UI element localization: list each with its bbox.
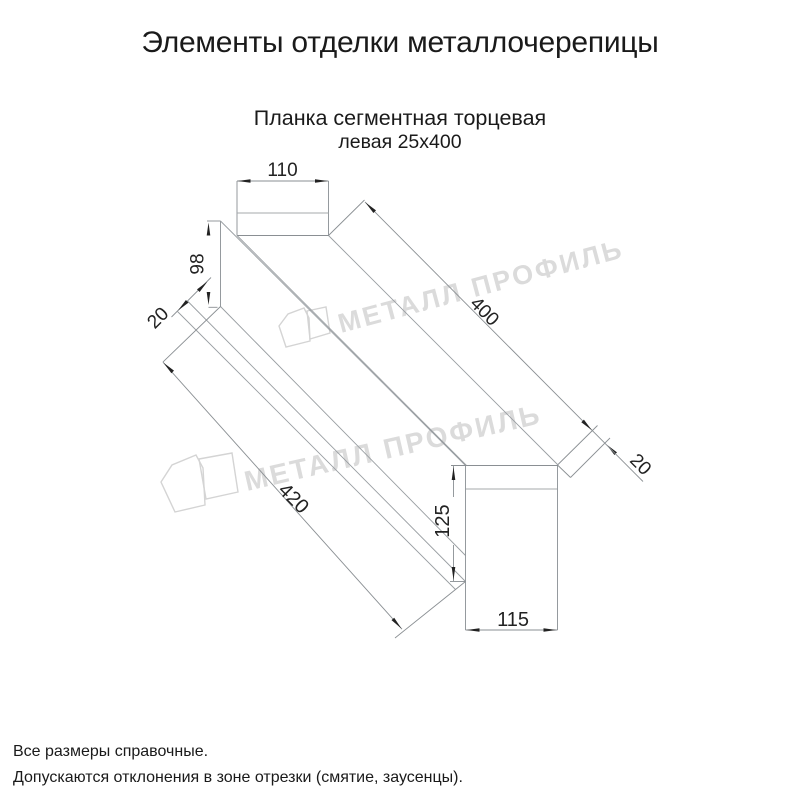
svg-text:115: 115 (497, 609, 529, 631)
svg-text:125: 125 (432, 504, 454, 537)
svg-text:98: 98 (188, 253, 209, 274)
svg-text:110: 110 (267, 160, 297, 181)
svg-text:20: 20 (625, 450, 655, 480)
svg-text:20: 20 (143, 303, 173, 333)
